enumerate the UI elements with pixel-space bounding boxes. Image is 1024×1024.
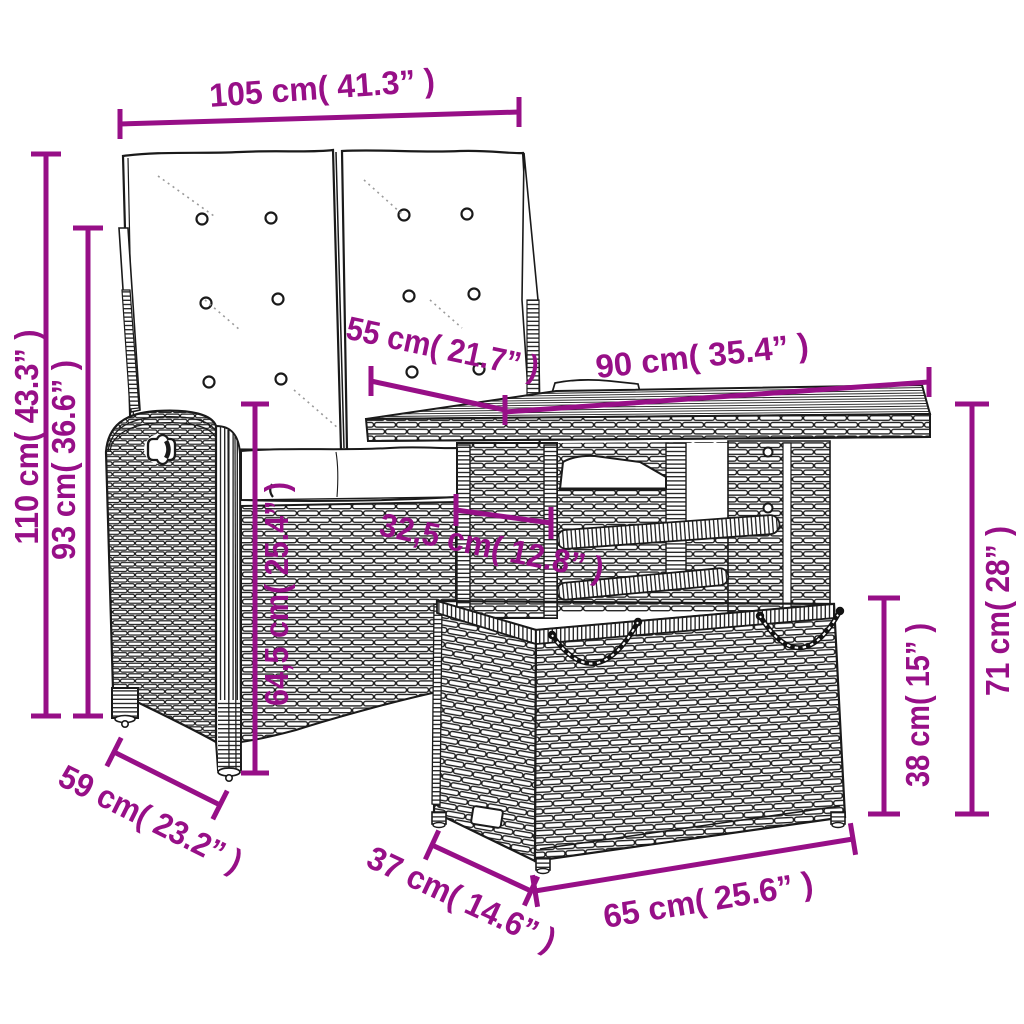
svg-text:93 cm( 36.6” ): 93 cm( 36.6” ) [45, 360, 82, 560]
svg-text:64,5 cm( 25.4” ): 64,5 cm( 25.4” ) [258, 482, 295, 706]
svg-text:110 cm( 43.3” ): 110 cm( 43.3” ) [8, 330, 45, 545]
svg-text:38 cm( 15” ): 38 cm( 15” ) [899, 623, 936, 787]
svg-text:71 cm( 28” ): 71 cm( 28” ) [979, 526, 1016, 696]
